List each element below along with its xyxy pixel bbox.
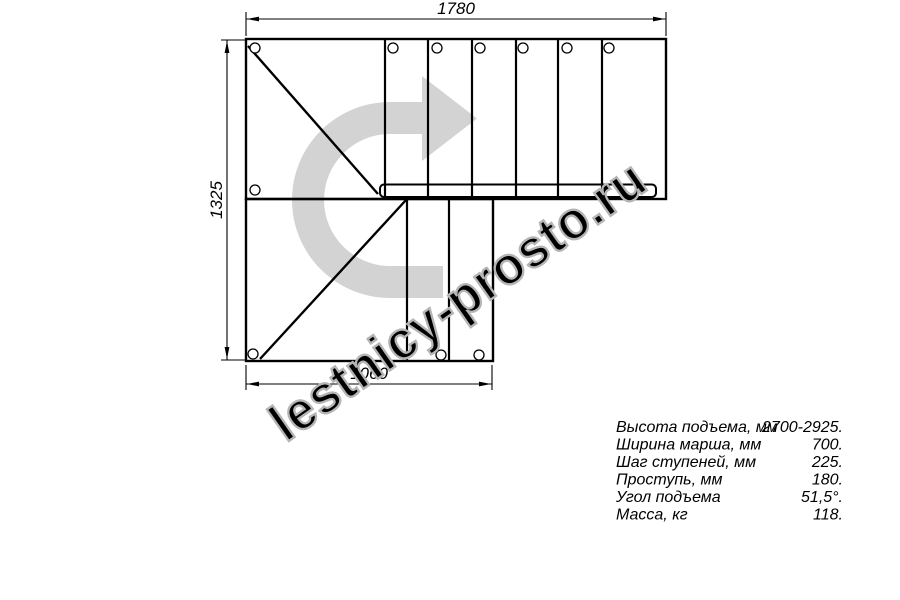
mounting-hole xyxy=(432,43,442,53)
spec-value: 118. xyxy=(813,507,843,524)
spec-label: Масса, кг xyxy=(616,507,688,524)
dimension-label: 1780 xyxy=(437,0,475,18)
stair-drawing-page: 1780 1325 1060 Высота по xyxy=(0,0,900,600)
spec-value: 700. xyxy=(812,437,843,454)
mounting-hole xyxy=(562,43,572,53)
mounting-hole xyxy=(388,43,398,53)
spec-label: Шаг ступеней, мм xyxy=(616,454,756,471)
stair-plan-drawing: 1780 1325 1060 Высота по xyxy=(0,0,900,600)
spec-label: Проступь, мм xyxy=(616,472,722,489)
mounting-hole xyxy=(248,349,258,359)
spec-value: 51,5°. xyxy=(801,489,843,506)
mounting-hole xyxy=(250,43,260,53)
spec-label: Ширина марша, мм xyxy=(616,437,761,454)
spec-value: 180. xyxy=(812,472,843,489)
spec-label: Высота подъема, мм xyxy=(616,419,778,436)
mounting-hole xyxy=(474,350,484,360)
spec-value: 225. xyxy=(811,454,843,471)
mounting-hole xyxy=(475,43,485,53)
mounting-hole xyxy=(250,185,260,195)
spec-label: Угол подъема xyxy=(615,489,721,506)
dimension-label: 1325 xyxy=(207,181,226,219)
spec-value: 2700-2925. xyxy=(761,419,843,436)
mounting-hole xyxy=(518,43,528,53)
mounting-hole xyxy=(604,43,614,53)
